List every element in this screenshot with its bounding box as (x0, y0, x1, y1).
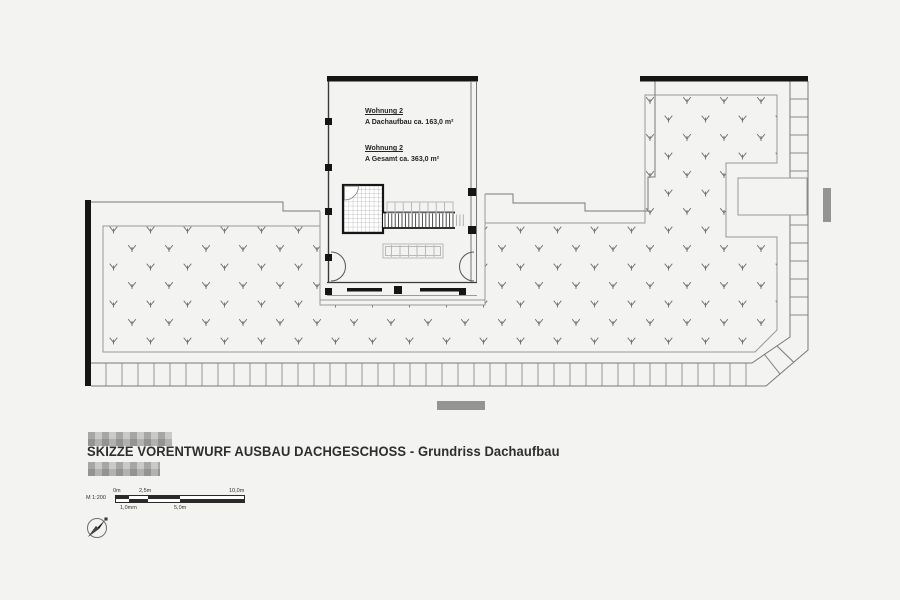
scale-tick-10m: 10,0m (229, 488, 244, 494)
west-wall (85, 200, 91, 386)
apartment-area: A Dachaufbau ca. 163,0 m² (365, 117, 453, 128)
sliding-door-left (347, 288, 382, 292)
scale-tick-0m: 0m (113, 488, 121, 494)
scale-tick-2-5m: 2,5m (139, 488, 151, 494)
scale-label: M 1:200 (86, 495, 106, 501)
drawing-sheet: Wohnung 2 A Dachaufbau ca. 163,0 m² Wohn… (0, 0, 900, 600)
apartment-name: Wohnung 2 (365, 143, 439, 154)
scale-tick-5m: 5,0m (174, 505, 186, 511)
apartment-area: A Gesamt ca. 363,0 m² (365, 154, 439, 165)
structure-north-wall (327, 76, 478, 82)
redacted-text-under-plan (437, 401, 485, 410)
sliding-door-right (420, 288, 463, 292)
scale-bar-segments (115, 495, 245, 503)
north-arrow-icon (83, 513, 113, 543)
redacted-text-block-bottom (88, 462, 160, 476)
stairwell (343, 185, 383, 233)
scale-tick-1m: 1,0mm (120, 505, 137, 511)
apartment-name: Wohnung 2 (365, 106, 453, 117)
apartment-label-1: Wohnung 2 A Dachaufbau ca. 163,0 m² (365, 106, 453, 128)
north-wall-right-wing (640, 76, 808, 82)
scale-bar: M 1:200 0m 2,5m 10,0m 1,0mm 5,0m (86, 487, 266, 515)
redacted-text-right (823, 188, 831, 222)
apartment-label-2: Wohnung 2 A Gesamt ca. 363,0 m² (365, 143, 439, 165)
drawing-title: SKIZZE VORENTWURF AUSBAU DACHGESCHOSS - … (87, 444, 560, 459)
roof-walkway (738, 178, 807, 215)
